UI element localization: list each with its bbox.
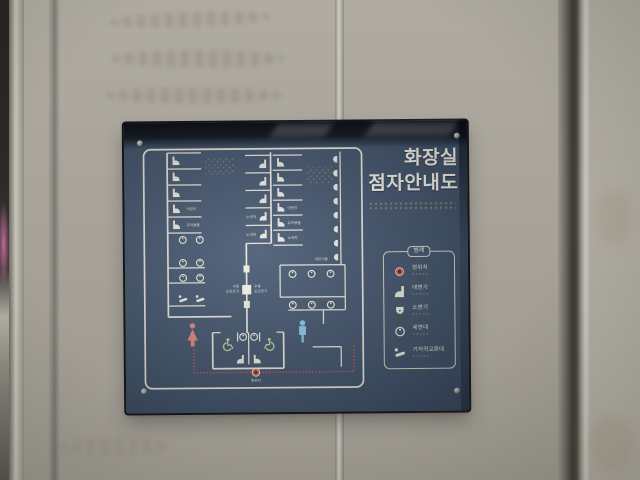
hand-dryer (242, 285, 251, 295)
faded-graffiti-2 (112, 50, 284, 67)
hand-dryer-label: 손건조기 (226, 289, 239, 294)
toilet-icon (260, 212, 267, 221)
stall-label-elderly: 노약자 (288, 235, 299, 240)
washbasin-icon (289, 302, 296, 309)
corner-screw (454, 388, 460, 394)
current-location-label: 현위치 (251, 378, 261, 383)
stall-label-child: 어린이 (287, 205, 297, 210)
braille-guide-sign: 화장실 점자안내도 범례 현위치 대변기 소변기 세면 (124, 121, 470, 414)
photo-of-restroom-braille-map: { "sign": { "title": { "line1": "화장실", "… (0, 0, 640, 480)
washbasin-icon (197, 259, 204, 266)
hand-dryer (244, 301, 250, 308)
urinal-icon (334, 240, 338, 247)
reflection-streak (365, 122, 458, 137)
braille-dots (413, 333, 430, 337)
legend-label: 대변기 (412, 285, 429, 291)
title-braille-dots (369, 202, 455, 212)
current-location-icon (392, 264, 407, 279)
washbasin-icon (289, 271, 296, 278)
legend-label: 기저귀교환대 (413, 347, 445, 353)
hand-dryer-label: 수동 (233, 283, 240, 288)
legend-item-washbasin: 세면대 (392, 321, 454, 342)
legend-label: 소변기 (412, 305, 429, 311)
current-location-marker: 현위치 (251, 369, 261, 383)
toilet-icon (259, 160, 266, 169)
urinal-icon (334, 254, 338, 261)
diaper-station-icon (196, 295, 205, 302)
toilet-icon (259, 195, 266, 204)
faded-graffiti-3 (106, 88, 282, 103)
sign-edge-shadow (459, 121, 470, 411)
floorplan: 어린이 유아용품 노약자 노약자 (141, 144, 367, 393)
toilet-icon (173, 205, 180, 214)
toilet-icon (278, 233, 285, 242)
washbasin-icon (392, 324, 407, 339)
washbasin-icon (327, 270, 334, 277)
toilet-icon (237, 355, 244, 364)
washbasin-icon (327, 301, 334, 308)
toilet-icon (173, 189, 180, 198)
wall-panel-crease (48, 0, 60, 480)
washbasin-icon (197, 274, 204, 281)
braille-dots (306, 167, 334, 184)
diaper-station-icon (393, 346, 408, 361)
toilet-icon (173, 221, 180, 230)
toilet-icon (277, 203, 284, 212)
wall-stain-2 (590, 415, 634, 473)
faded-graffiti-4 (60, 438, 170, 456)
legend-title: 범례 (407, 246, 430, 257)
urinal-icon (333, 156, 337, 163)
wall-frame-highlight (9, 0, 24, 480)
right-washbasin-area (280, 265, 346, 325)
legend-item-diaper-station: 기저귀교환대 (393, 341, 455, 366)
stall-label-elderly: 노약자 (246, 214, 257, 219)
washbasin-icon (308, 301, 315, 308)
washbasin-icon (196, 236, 203, 243)
braille-dots (412, 313, 429, 317)
urinal-icon (333, 198, 337, 205)
legend-item-toilet: 대변기 (392, 281, 454, 302)
toilet-icon (259, 177, 266, 186)
female-symbol (187, 323, 198, 346)
braille-dots (412, 273, 429, 277)
sign-title-line2: 점자안내도 (368, 171, 458, 197)
toilet-icon (260, 230, 267, 239)
middle-toilet-stalls: 노약자 노약자 어린이 유아용품 노약자 (245, 152, 303, 245)
stall-label-child: 어린이 (186, 206, 196, 211)
left-washbasin-area (168, 236, 206, 306)
legend-item-urinal: 소변기 (392, 301, 454, 322)
washbasin-icon (179, 237, 186, 244)
toilet-icon (173, 173, 180, 182)
toilet-icon (278, 218, 285, 227)
braille-dots (205, 157, 235, 177)
hand-dryer-wall: 수동 손건조기 수동 손건조기 (226, 243, 268, 333)
braille-dots (412, 293, 429, 297)
toilet-icon (277, 173, 284, 182)
toilet-icon (173, 157, 180, 166)
washbasin-icon (180, 260, 187, 267)
hand-dryer-label: 수동 (254, 283, 261, 288)
diaper-station-icon (179, 295, 188, 302)
toilet-icon (392, 284, 407, 299)
wheelchair-icon (265, 338, 274, 350)
braille-dots (413, 355, 430, 359)
toilet-icon (277, 158, 284, 167)
accessible-restroom (213, 332, 284, 369)
toilet-icon (254, 355, 261, 364)
legend-label: 현위치 (412, 265, 429, 271)
stall-label-infant: 유아용품 (288, 220, 302, 225)
washbasin-icon (251, 333, 258, 340)
wall-panel-seam-right (558, 0, 590, 480)
urinal-icon (334, 212, 338, 219)
legend-label: 세면대 (413, 325, 430, 331)
washbasin-icon (240, 334, 247, 341)
reflection-streak (270, 124, 332, 138)
male-symbol (299, 320, 306, 342)
urinal-icon (333, 184, 337, 191)
legend-item-current-location: 현위치 (392, 261, 454, 282)
stall-label-elderly: 노약자 (246, 232, 257, 237)
urinal-icon (334, 226, 338, 233)
faded-graffiti-1 (110, 9, 270, 30)
wall-edge-dark (0, 0, 9, 480)
wall-stain-1 (596, 190, 632, 245)
pink-smudge (0, 203, 9, 285)
stall-label-infant: 유아용품 (187, 222, 201, 227)
hand-dryer (243, 265, 249, 272)
legend-box: 범례 현위치 대변기 소변기 세면대 (383, 251, 456, 370)
urinal-icon (392, 304, 407, 319)
hand-dryer-label: 손건조기 (254, 288, 267, 293)
corner-screw (454, 133, 460, 139)
left-toilet-stalls: 어린이 유아용품 (167, 153, 231, 318)
corridor-wall (313, 347, 342, 367)
wheelchair-icon (223, 338, 232, 350)
washbasin-icon (180, 275, 187, 282)
toilet-icon (277, 188, 284, 197)
sign-title-line1: 화장실 (368, 146, 458, 172)
child-urinal-label: 어린이용 (315, 256, 329, 261)
washbasin-icon (308, 270, 315, 277)
sign-title: 화장실 점자안내도 (368, 146, 458, 197)
